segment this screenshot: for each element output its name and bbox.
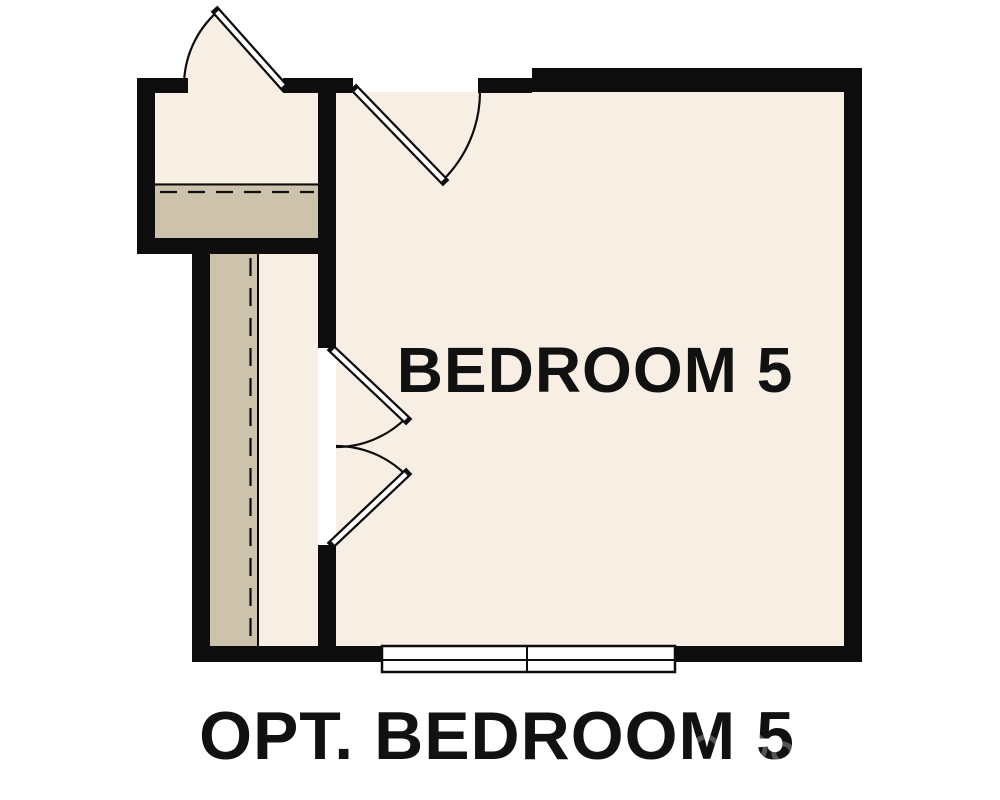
bottom-window <box>382 646 675 672</box>
floor-plan-drawing: BEDROOM 5 OPT. BEDROOM 5 <box>0 0 1000 800</box>
closet-bottom-wall <box>137 238 336 254</box>
bedroom-top-wall-thin <box>478 78 532 93</box>
bedroom-right-wall <box>844 68 862 662</box>
floor-plan-page: BEDROOM 5 OPT. BEDROOM 5 <box>0 0 1000 800</box>
room-label: BEDROOM 5 <box>397 334 794 406</box>
closet-left-wall <box>137 78 155 254</box>
bedroom-left-wall-upper <box>318 78 336 348</box>
bedroom-top-wall-thick <box>532 68 862 92</box>
bottom-wall-left <box>192 646 382 662</box>
corridor-left-wall <box>192 238 210 646</box>
bottom-wall-right <box>675 646 844 662</box>
closet-top-wall-left <box>137 78 188 93</box>
closet-shelf-band <box>155 183 318 238</box>
bedroom-left-wall-lower <box>318 545 336 646</box>
